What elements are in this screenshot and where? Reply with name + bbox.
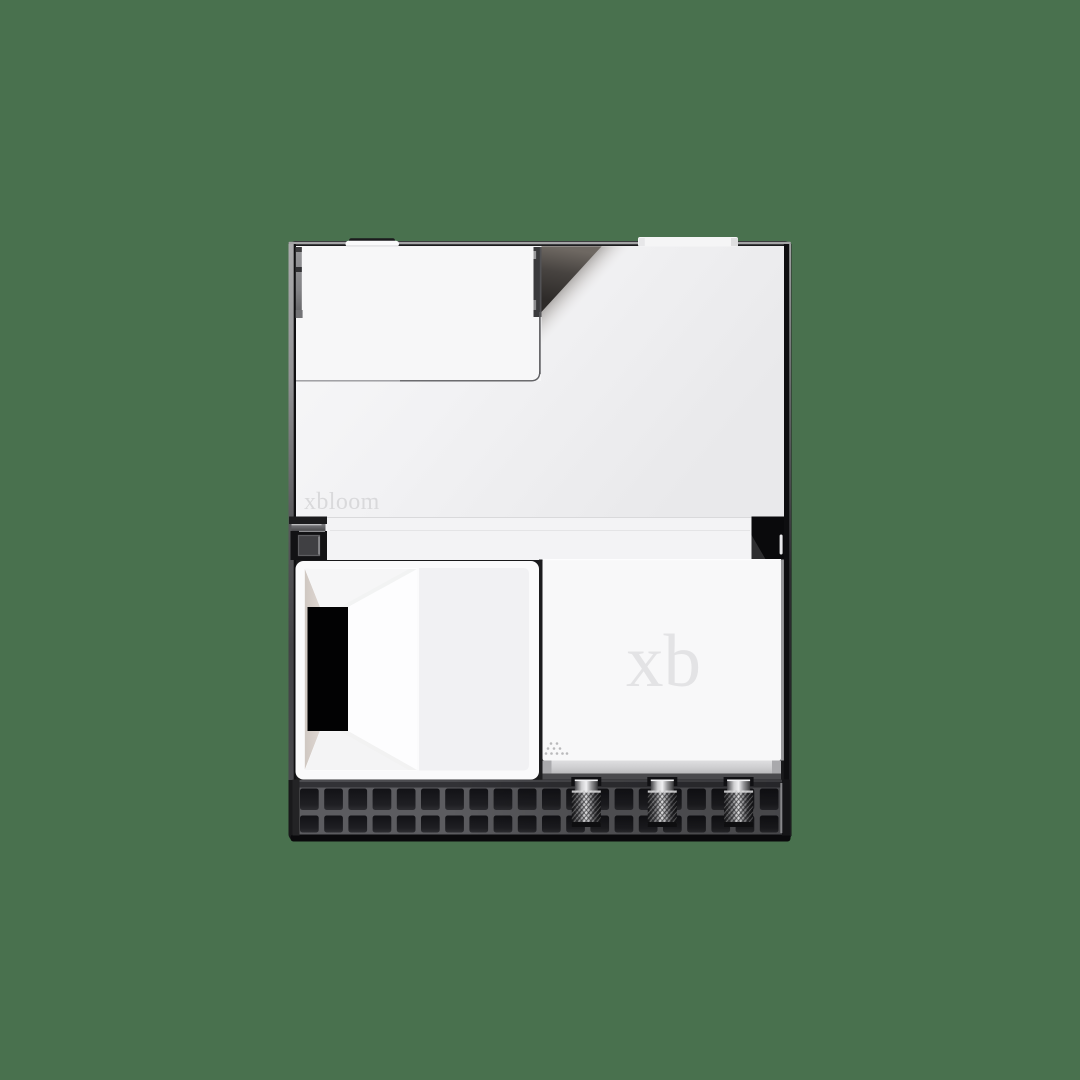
svg-text:xbloom: xbloom <box>304 489 380 515</box>
svg-text:xb: xb <box>626 620 701 703</box>
